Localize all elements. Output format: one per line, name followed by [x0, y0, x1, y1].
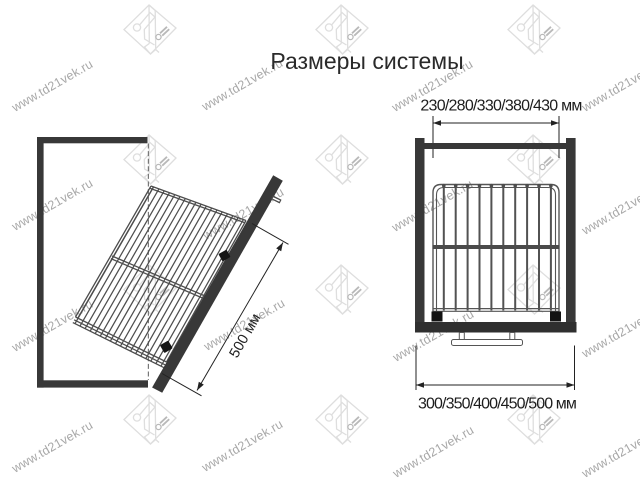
- svg-text:300/350/400/450/500 мм: 300/350/400/450/500 мм: [418, 396, 576, 413]
- svg-text:www.td21vek.ru: www.td21vek.ru: [9, 176, 96, 234]
- svg-text:www.td21vek.ru: www.td21vek.ru: [9, 57, 96, 115]
- svg-text:www.td21vek.ru: www.td21vek.ru: [389, 177, 476, 235]
- svg-text:230/280/330/380/430 мм: 230/280/330/380/430 мм: [420, 98, 581, 115]
- svg-text:www.td21vek.ru: www.td21vek.ru: [390, 423, 477, 480]
- svg-text:Размеры системы: Размеры системы: [270, 48, 463, 74]
- svg-text:www.td21vek.ru: www.td21vek.ru: [199, 417, 286, 475]
- svg-text:www.td21vek.ru: www.td21vek.ru: [579, 303, 640, 361]
- svg-text:www.td21vek.ru: www.td21vek.ru: [579, 57, 640, 115]
- svg-text:www.td21vek.ru: www.td21vek.ru: [579, 180, 640, 238]
- svg-text:www.td21vek.ru: www.td21vek.ru: [9, 418, 96, 476]
- svg-text:www.td21vek.ru: www.td21vek.ru: [579, 423, 640, 480]
